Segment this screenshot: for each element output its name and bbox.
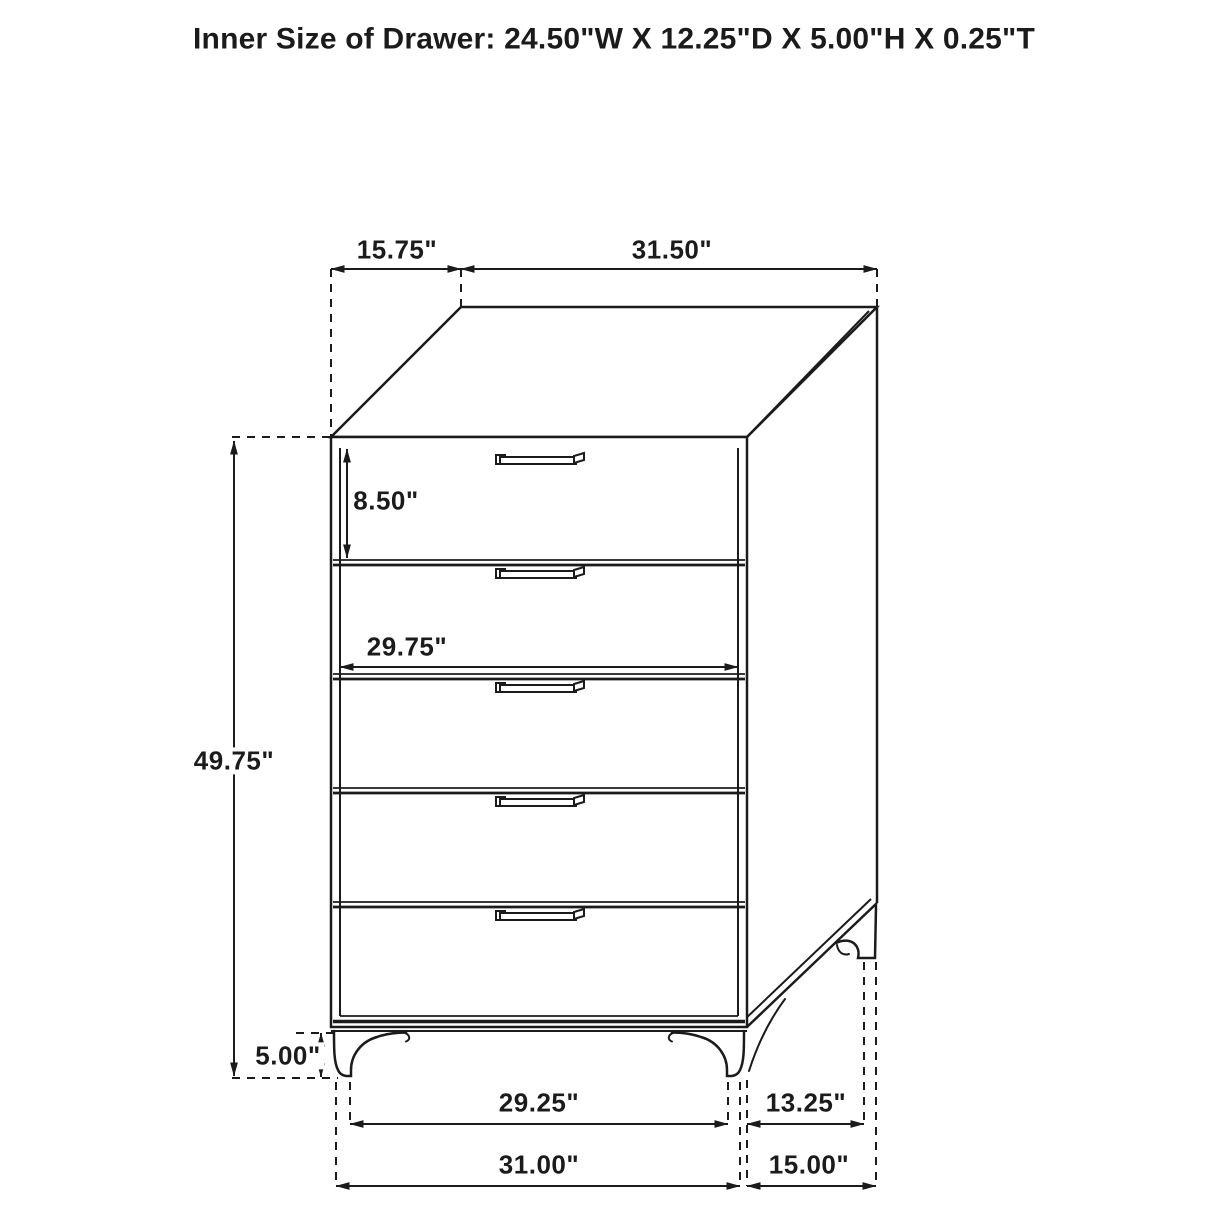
chest-line-drawing	[0, 0, 1214, 1214]
front-face	[331, 437, 747, 1027]
front-right-leg	[672, 1031, 744, 1076]
cabinet-body	[331, 307, 877, 1031]
dim-label-leg-height: 5.00"	[251, 1042, 324, 1069]
furniture-dimension-diagram: Inner Size of Drawer: 24.50"W X 12.25"D …	[0, 0, 1214, 1214]
diagram-title: Inner Size of Drawer: 24.50"W X 12.25"D …	[189, 23, 1039, 55]
dim-label-overall-height: 49.75"	[190, 747, 278, 774]
dim-label-front-feet-span: 29.25"	[495, 1089, 583, 1116]
dim-label-side-feet-span: 13.25"	[762, 1089, 850, 1116]
dim-label-drawer-front-height: 8.50"	[349, 487, 422, 514]
dim-label-top-depth: 15.75"	[353, 236, 441, 263]
dim-label-overall-depth: 15.00"	[765, 1151, 853, 1178]
dim-label-top-width: 31.50"	[628, 236, 716, 263]
front-left-leg	[334, 1031, 406, 1076]
dim-label-overall-width: 31.00"	[495, 1151, 583, 1178]
dim-label-drawer-front-width: 29.75"	[363, 633, 451, 660]
